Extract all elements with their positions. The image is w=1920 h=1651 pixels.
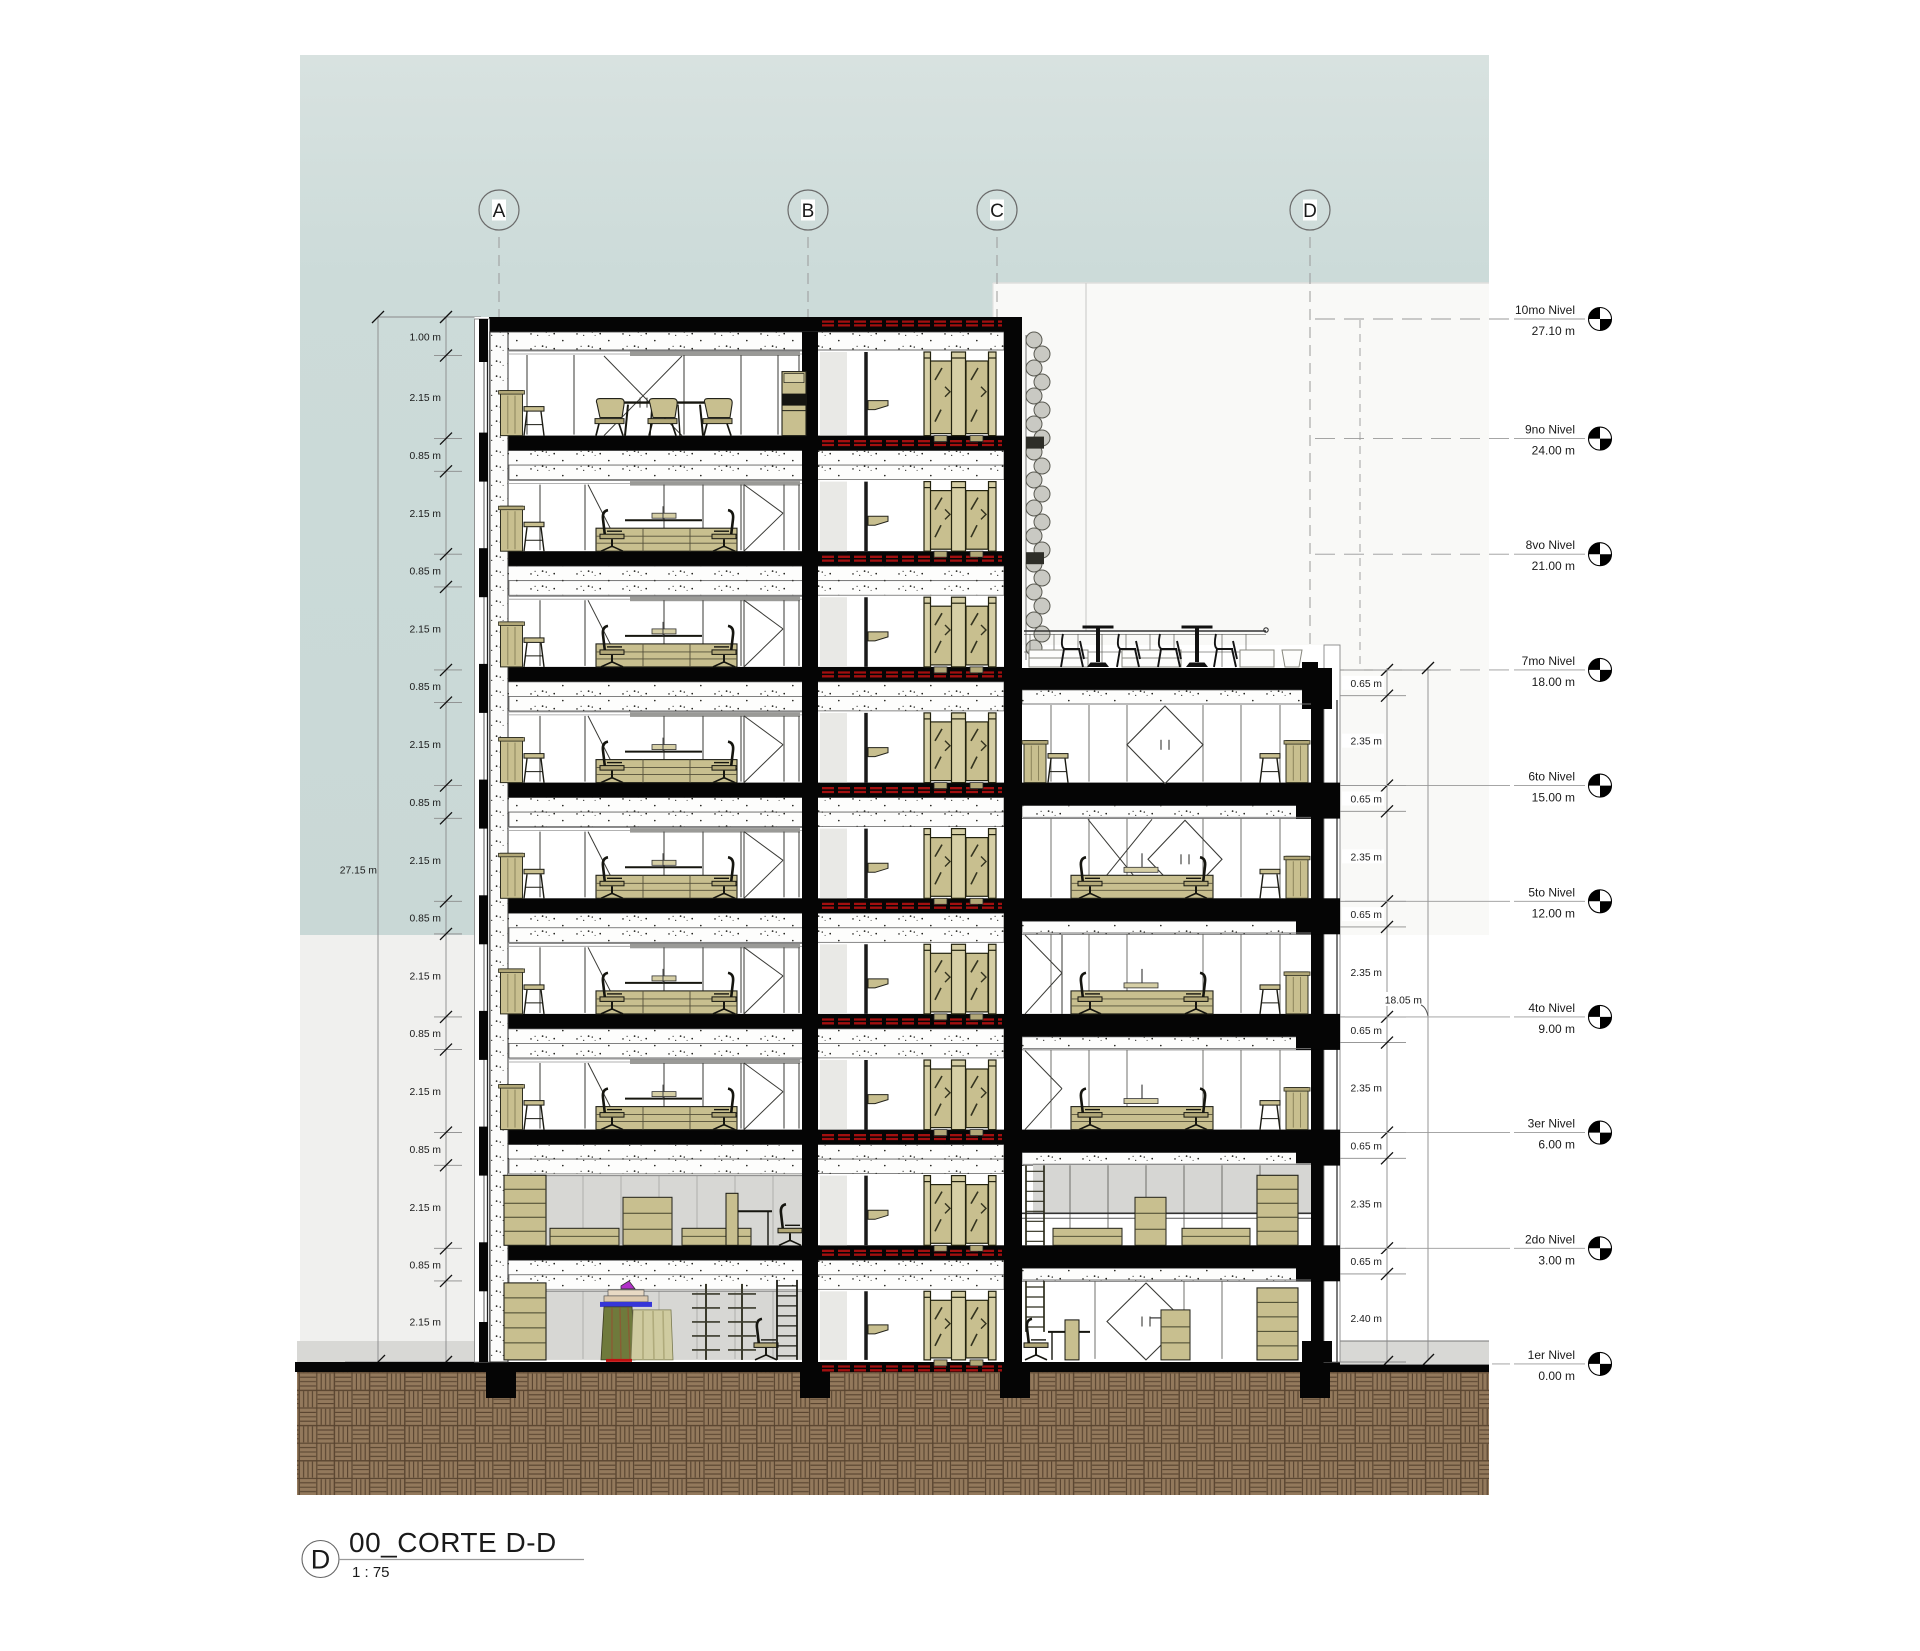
svg-text:0.85 m: 0.85 m [410,567,441,578]
svg-text:0.65 m: 0.65 m [1351,910,1382,921]
svg-text:2.15 m: 2.15 m [410,740,441,751]
svg-text:5to Nivel: 5to Nivel [1528,885,1575,899]
svg-text:0.85 m: 0.85 m [410,682,441,693]
svg-text:A: A [493,201,506,222]
svg-text:2.15 m: 2.15 m [410,1087,441,1098]
svg-text:1 : 75: 1 : 75 [352,1564,390,1581]
svg-text:0.65 m: 0.65 m [1351,679,1382,690]
svg-text:8vo Nivel: 8vo Nivel [1526,538,1575,552]
svg-text:1.00 m: 1.00 m [410,332,441,343]
svg-text:00_CORTE D-D: 00_CORTE D-D [349,1527,557,1558]
svg-text:2.40 m: 2.40 m [1351,1314,1382,1325]
svg-text:B: B [802,201,815,222]
svg-text:10mo Nivel: 10mo Nivel [1515,303,1575,317]
svg-text:0.85 m: 0.85 m [410,798,441,809]
svg-text:21.00 m: 21.00 m [1532,559,1575,573]
svg-text:27.10 m: 27.10 m [1532,324,1575,338]
svg-text:18.05 m: 18.05 m [1385,996,1422,1007]
svg-text:D: D [311,1545,331,1575]
svg-text:7mo Nivel: 7mo Nivel [1522,654,1575,668]
svg-text:1er Nivel: 1er Nivel [1528,1348,1575,1362]
svg-text:0.85 m: 0.85 m [410,451,441,462]
svg-text:15.00 m: 15.00 m [1532,791,1575,805]
svg-text:2.15 m: 2.15 m [410,1203,441,1214]
svg-text:2.35 m: 2.35 m [1351,737,1382,748]
svg-text:27.15 m: 27.15 m [340,866,377,877]
svg-text:0.65 m: 0.65 m [1351,1026,1382,1037]
svg-text:2.15 m: 2.15 m [410,971,441,982]
svg-text:2.15 m: 2.15 m [410,1318,441,1329]
svg-text:0.85 m: 0.85 m [410,914,441,925]
svg-text:2.15 m: 2.15 m [410,393,441,404]
svg-text:0.65 m: 0.65 m [1351,1141,1382,1152]
svg-text:2.15 m: 2.15 m [410,624,441,635]
svg-text:2.35 m: 2.35 m [1351,1084,1382,1095]
svg-text:3er Nivel: 3er Nivel [1528,1117,1575,1131]
svg-text:0.00 m: 0.00 m [1538,1369,1575,1383]
svg-text:4to Nivel: 4to Nivel [1528,1001,1575,1015]
svg-text:2do Nivel: 2do Nivel [1525,1232,1575,1246]
svg-text:D: D [1303,201,1317,222]
svg-text:2.35 m: 2.35 m [1351,968,1382,979]
svg-text:0.85 m: 0.85 m [410,1145,441,1156]
svg-text:9.00 m: 9.00 m [1538,1022,1575,1036]
svg-text:0.65 m: 0.65 m [1351,795,1382,806]
svg-text:2.15 m: 2.15 m [410,856,441,867]
svg-text:24.00 m: 24.00 m [1532,444,1575,458]
svg-text:2.35 m: 2.35 m [1351,852,1382,863]
svg-text:C: C [990,201,1004,222]
svg-text:3.00 m: 3.00 m [1538,1253,1575,1267]
svg-text:6to Nivel: 6to Nivel [1528,770,1575,784]
svg-text:2.35 m: 2.35 m [1351,1199,1382,1210]
svg-text:0.85 m: 0.85 m [410,1029,441,1040]
svg-text:12.00 m: 12.00 m [1532,906,1575,920]
svg-text:6.00 m: 6.00 m [1538,1138,1575,1152]
svg-text:0.65 m: 0.65 m [1351,1257,1382,1268]
svg-text:9no Nivel: 9no Nivel [1525,423,1575,437]
svg-text:18.00 m: 18.00 m [1532,675,1575,689]
svg-text:2.15 m: 2.15 m [410,509,441,520]
svg-text:0.85 m: 0.85 m [410,1261,441,1272]
